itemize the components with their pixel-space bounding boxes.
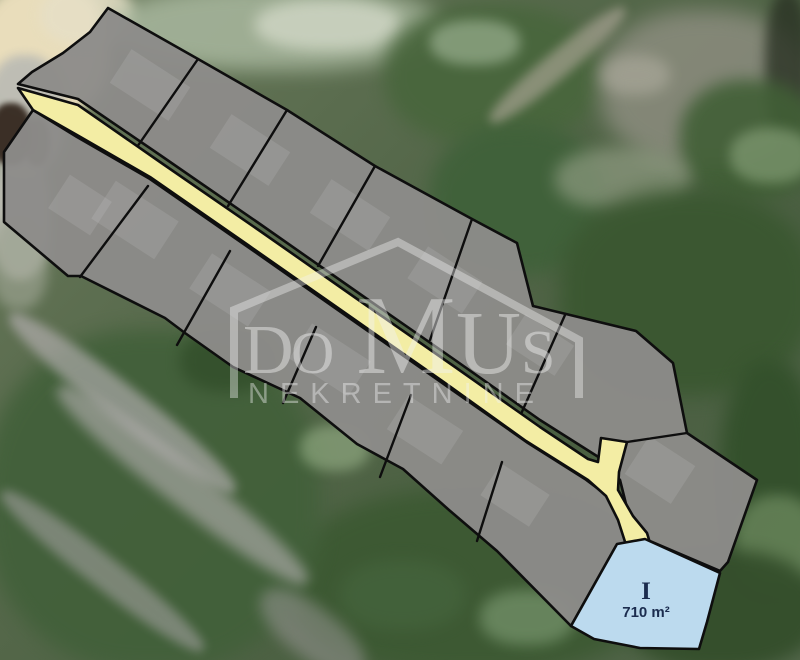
parcel-overlay: D O M U S NEKRETNINE I 710 m² bbox=[0, 0, 800, 660]
watermark-subtitle: NEKRETNINE bbox=[248, 378, 545, 410]
aerial-parcel-map: D O M U S NEKRETNINE I 710 m² bbox=[0, 0, 800, 660]
plot-id-label: I bbox=[641, 578, 651, 605]
plot-area-label: 710 m² bbox=[622, 604, 670, 621]
